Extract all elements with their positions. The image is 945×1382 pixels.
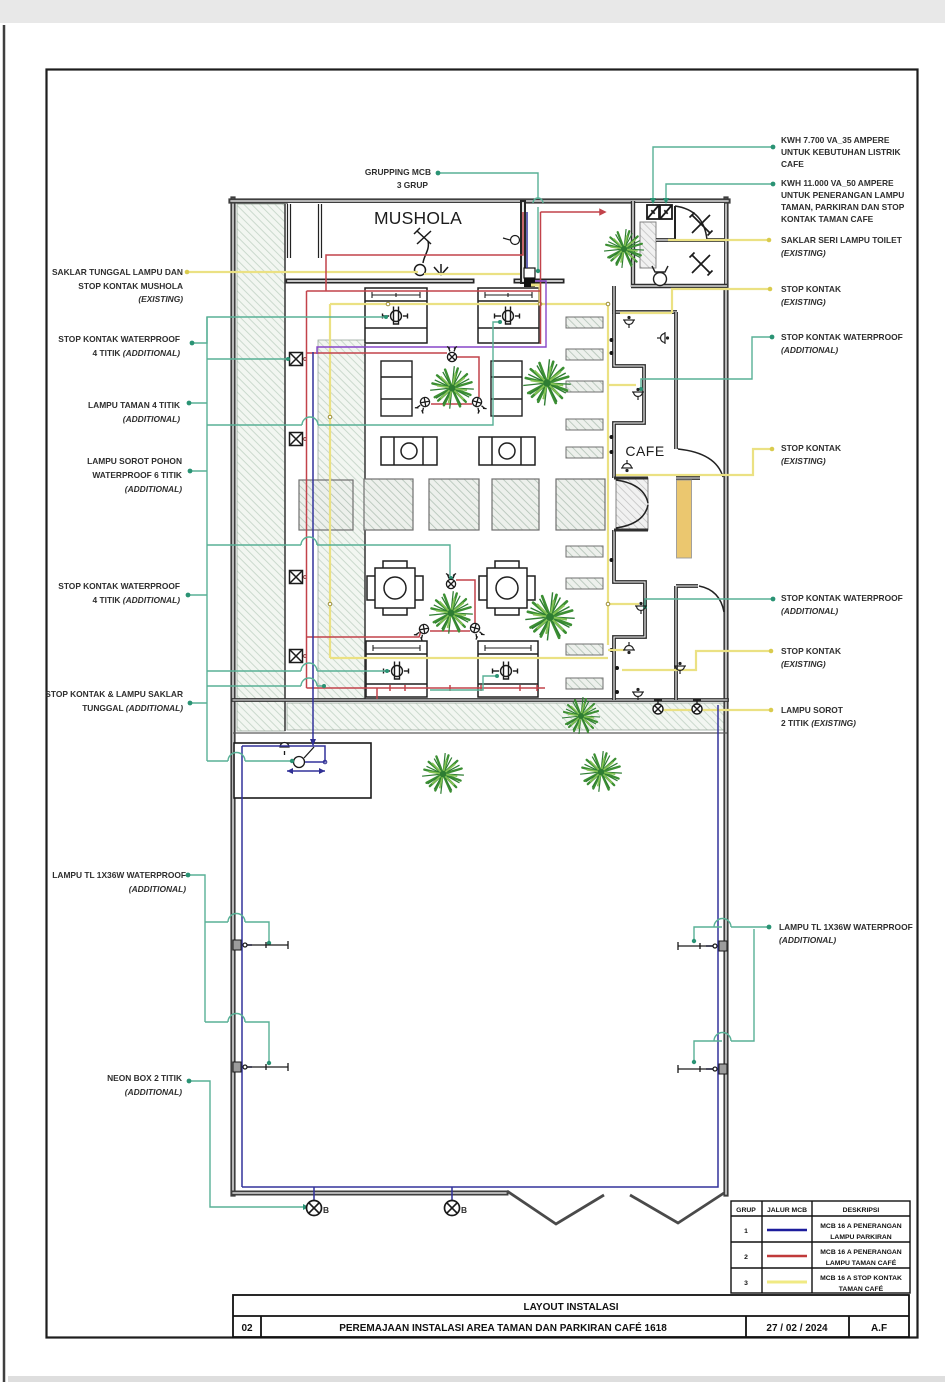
svg-text:LAMPU TL 1X36W WATERPROOF: LAMPU TL 1X36W WATERPROOF: [52, 870, 186, 880]
svg-text:LAMPU TAMAN 4 TITIK: LAMPU TAMAN 4 TITIK: [88, 400, 180, 410]
svg-text:(ADDITIONAL): (ADDITIONAL): [129, 884, 186, 894]
svg-text:(ADDITIONAL): (ADDITIONAL): [781, 606, 838, 616]
svg-text:STOP KONTAK WATERPROOF: STOP KONTAK WATERPROOF: [781, 593, 903, 603]
svg-text:SAKLAR TUNGGAL LAMPU DAN: SAKLAR TUNGGAL LAMPU DAN: [52, 267, 183, 277]
svg-text:LAMPU SOROT: LAMPU SOROT: [781, 705, 844, 715]
svg-text:PEREMAJAAN INSTALASI AREA TAMA: PEREMAJAAN INSTALASI AREA TAMAN DAN PARK…: [339, 1321, 667, 1334]
svg-text:STOP KONTAK WATERPROOF: STOP KONTAK WATERPROOF: [781, 332, 903, 342]
svg-text:STOP KONTAK MUSHOLA: STOP KONTAK MUSHOLA: [78, 281, 183, 291]
svg-text:STOP KONTAK: STOP KONTAK: [781, 284, 841, 294]
svg-text:NEON BOX 2 TITIK: NEON BOX 2 TITIK: [107, 1073, 182, 1083]
svg-text:GRUPPING MCB: GRUPPING MCB: [365, 167, 431, 177]
svg-text:KWH 7.700 VA_35 AMPERE: KWH 7.700 VA_35 AMPERE: [781, 135, 890, 145]
svg-text:WATERPROOF 6 TITIK: WATERPROOF 6 TITIK: [92, 470, 182, 480]
svg-text:KWH 11.000 VA_50 AMPERE: KWH 11.000 VA_50 AMPERE: [781, 178, 894, 188]
svg-text:TAMAN CAFÉ: TAMAN CAFÉ: [839, 1284, 884, 1293]
svg-text:TAMAN, PARKIRAN DAN STOP: TAMAN, PARKIRAN DAN STOP: [781, 202, 905, 212]
svg-text:LAYOUT INSTALASI: LAYOUT INSTALASI: [523, 1302, 618, 1313]
svg-text:DESKRIPSI: DESKRIPSI: [843, 1207, 880, 1214]
svg-text:STOP KONTAK & LAMPU SAKLAR: STOP KONTAK & LAMPU SAKLAR: [45, 689, 183, 699]
svg-text:(ADDITIONAL): (ADDITIONAL): [781, 345, 838, 355]
svg-text:LAMPU SOROT POHON: LAMPU SOROT POHON: [87, 456, 182, 466]
svg-text:UNTUK KEBUTUHAN LISTRIK: UNTUK KEBUTUHAN LISTRIK: [781, 147, 901, 157]
svg-text:LAMPU PARKIRAN: LAMPU PARKIRAN: [830, 1234, 892, 1241]
svg-text:02: 02: [241, 1323, 253, 1334]
svg-text:3 GRUP: 3 GRUP: [397, 180, 429, 190]
svg-text:STOP KONTAK: STOP KONTAK: [781, 646, 841, 656]
svg-text:(EXISTING): (EXISTING): [781, 248, 826, 258]
svg-text:MCB 16 A STOP KONTAK: MCB 16 A STOP KONTAK: [820, 1275, 902, 1282]
svg-text:CAFE: CAFE: [625, 443, 664, 459]
svg-text:B: B: [461, 1205, 467, 1215]
svg-text:TUNGGAL (ADDITIONAL): TUNGGAL (ADDITIONAL): [82, 703, 183, 713]
svg-text:STOP KONTAK WATERPROOF: STOP KONTAK WATERPROOF: [58, 334, 180, 344]
svg-text:MCB 16 A PENERANGAN: MCB 16 A PENERANGAN: [820, 1249, 902, 1256]
svg-text:2 TITIK (EXISTING): 2 TITIK (EXISTING): [781, 718, 856, 728]
svg-text:STOP KONTAK WATERPROOF: STOP KONTAK WATERPROOF: [58, 581, 180, 591]
svg-text:2: 2: [744, 1254, 748, 1261]
svg-text:JALUR MCB: JALUR MCB: [767, 1207, 807, 1214]
svg-text:LAMPU TAMAN CAFÉ: LAMPU TAMAN CAFÉ: [826, 1258, 897, 1267]
svg-text:UNTUK PENERANGAN LAMPU: UNTUK PENERANGAN LAMPU: [781, 190, 904, 200]
svg-text:(ADDITIONAL): (ADDITIONAL): [125, 484, 182, 494]
svg-text:(ADDITIONAL): (ADDITIONAL): [123, 414, 180, 424]
svg-text:(EXISTING): (EXISTING): [781, 297, 826, 307]
svg-text:3: 3: [744, 1280, 748, 1287]
svg-text:A.F: A.F: [871, 1323, 887, 1334]
svg-text:MUSHOLA: MUSHOLA: [374, 208, 462, 228]
svg-text:4 TITIK (ADDITIONAL): 4 TITIK (ADDITIONAL): [93, 595, 181, 605]
svg-text:(EXISTING): (EXISTING): [781, 456, 826, 466]
svg-text:27 / 02 / 2024: 27 / 02 / 2024: [766, 1323, 828, 1334]
svg-text:GRUP: GRUP: [736, 1207, 756, 1214]
svg-text:STOP KONTAK: STOP KONTAK: [781, 443, 841, 453]
svg-text:LAMPU TL 1X36W WATERPROOF: LAMPU TL 1X36W WATERPROOF: [779, 922, 913, 932]
svg-text:(ADDITIONAL): (ADDITIONAL): [779, 935, 836, 945]
svg-text:MCB 16 A PENERANGAN: MCB 16 A PENERANGAN: [820, 1223, 902, 1230]
svg-text:(ADDITIONAL): (ADDITIONAL): [125, 1087, 182, 1097]
svg-text:B: B: [323, 1205, 329, 1215]
svg-text:4 TITIK (ADDITIONAL): 4 TITIK (ADDITIONAL): [93, 348, 181, 358]
svg-text:(EXISTING): (EXISTING): [781, 659, 826, 669]
svg-text:SAKLAR SERI LAMPU TOILET: SAKLAR SERI LAMPU TOILET: [781, 235, 903, 245]
svg-text:CAFE: CAFE: [781, 159, 804, 169]
svg-text:(EXISTING): (EXISTING): [138, 294, 183, 304]
svg-text:KONTAK TAMAN CAFE: KONTAK TAMAN CAFE: [781, 214, 874, 224]
svg-text:1: 1: [744, 1228, 748, 1235]
